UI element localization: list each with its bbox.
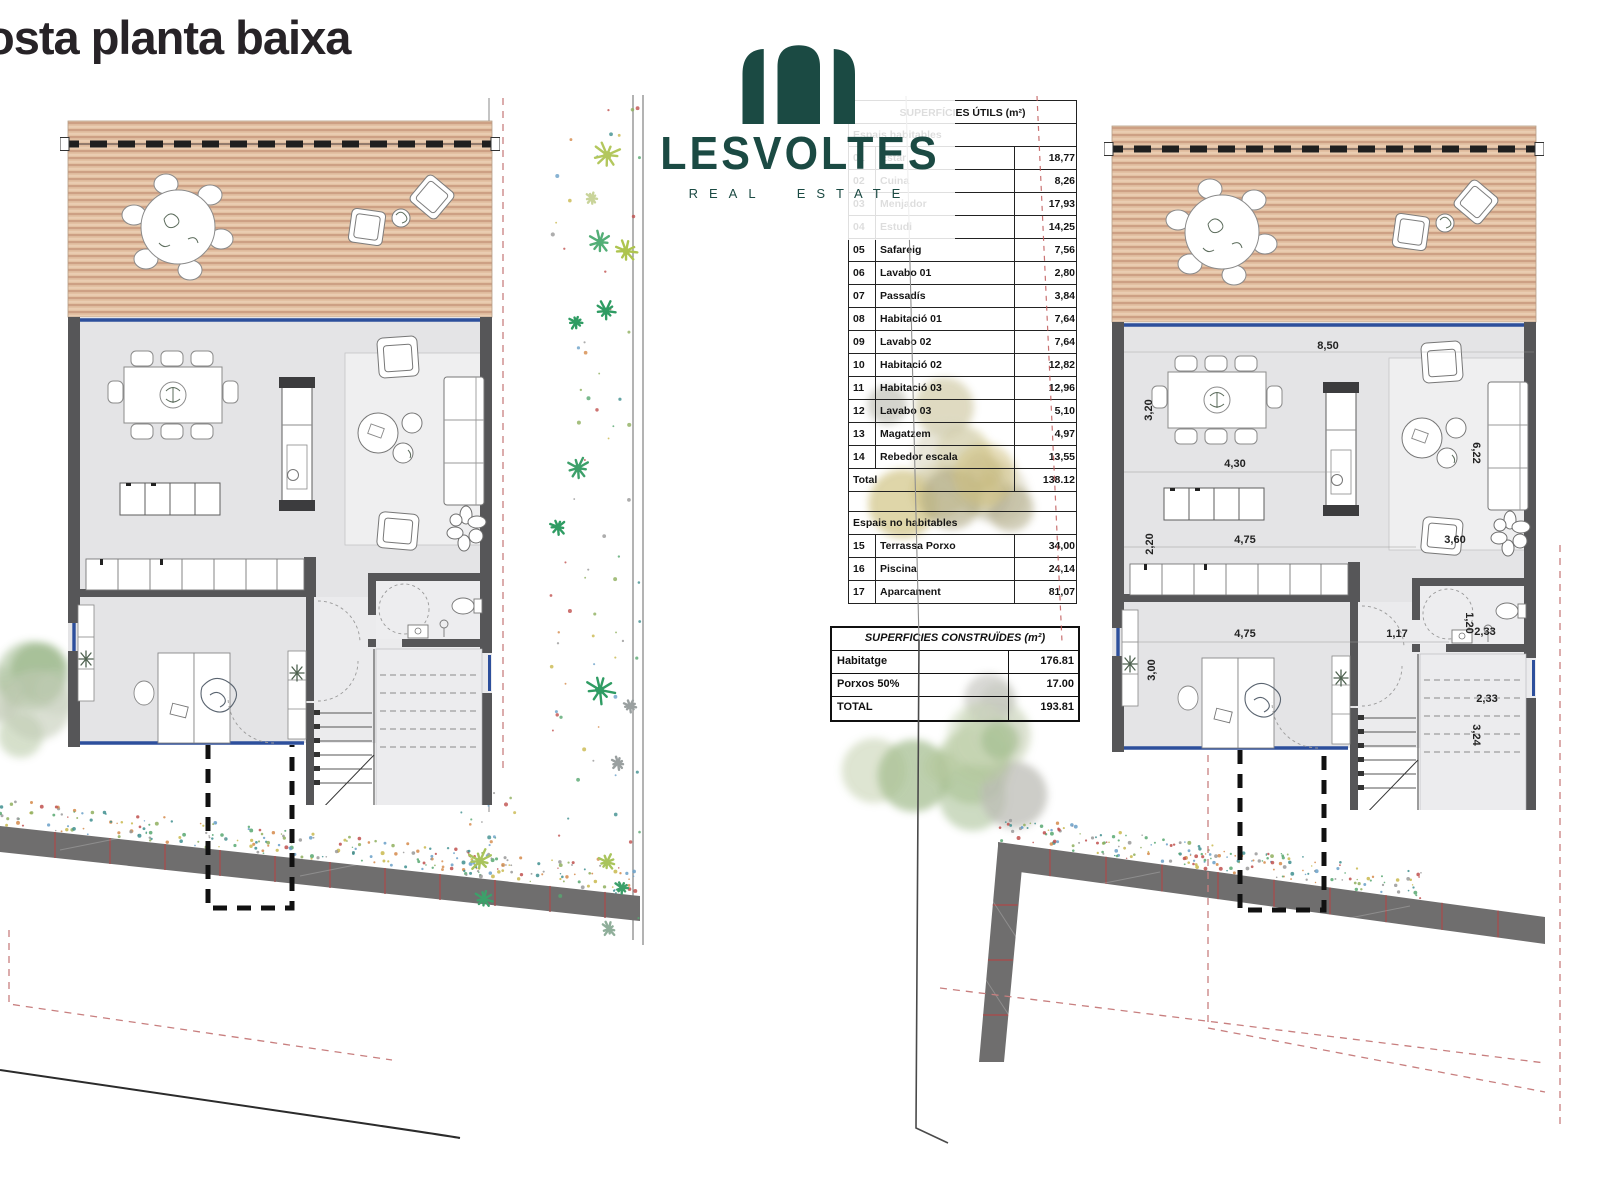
table-cell-num: 08 (849, 308, 876, 330)
table-row: 16Piscina24,14 (848, 558, 1077, 581)
table-cell-value: 2,80 (1014, 262, 1078, 284)
total-value: 138.12 (1014, 469, 1078, 491)
dim-label: 3,60 (1444, 534, 1465, 546)
table-cell-label: Porxos 50% (832, 674, 1008, 696)
dim-label: 3,20 (1143, 399, 1155, 420)
table-cell-label: Magatzem (876, 423, 1014, 445)
table-cell-num: 14 (849, 446, 876, 468)
table-cell-label: Rebedor escala (876, 446, 1014, 468)
logo-wordmark: LESVOLTES (660, 128, 939, 181)
table-row: 11Habitació 0312,96 (848, 377, 1077, 400)
dim-label: 6,22 (1470, 442, 1482, 463)
site-contour-line (0, 1070, 460, 1138)
table-row: 06Lavabo 012,80 (848, 262, 1077, 285)
table-cell-label: Piscina (876, 558, 1014, 580)
table-cell-value: 7,56 (1014, 239, 1078, 261)
table-cell-value: 176.81 (1008, 651, 1078, 673)
table-cell-label: Aparcament (876, 581, 1014, 603)
dim-label: 1,17 (1386, 628, 1407, 640)
total-row: Total 138.12 (848, 469, 1077, 492)
table-row: 09Lavabo 027,64 (848, 331, 1077, 354)
table-cell-value: 18,77 (1014, 147, 1078, 169)
table-cell-label: Terrassa Porxo (876, 535, 1014, 557)
table-cell-num: 06 (849, 262, 876, 284)
dim-label: 2,33 (1474, 626, 1495, 638)
table-cell-value: 34,00 (1014, 535, 1078, 557)
table-cell-label: Safareig (876, 239, 1014, 261)
table-cell-label: Lavabo 03 (876, 400, 1014, 422)
table-cell-num: 07 (849, 285, 876, 307)
table-row: 05Safareig7,56 (848, 239, 1077, 262)
dim-label: 4,75 (1234, 628, 1255, 640)
table-cell-value: 12,96 (1014, 377, 1078, 399)
table-cell-num: 05 (849, 239, 876, 261)
dim-label: 4,75 (1234, 534, 1255, 546)
table-cell-value: 13,55 (1014, 446, 1078, 468)
table-cell-value: 193.81 (1008, 697, 1078, 720)
table-cell-num: 15 (849, 535, 876, 557)
table-row: 14Rebedor escala13,55 (848, 446, 1077, 469)
table-cell-value: 7,64 (1014, 308, 1078, 330)
dim-label: 2,20 (1144, 533, 1156, 554)
table-row: 13Magatzem4,97 (848, 423, 1077, 446)
floor-plan-right: 8,50 3,20 4,30 2,20 4,75 3,60 6,22 4,75 … (1104, 120, 1544, 810)
table-row: 17Aparcament81,07 (848, 581, 1077, 604)
page-title: osta planta baixa (0, 10, 350, 65)
table-row: TOTAL193.81 (832, 697, 1078, 720)
table-cell-num: 11 (849, 377, 876, 399)
table-cell-value: 7,64 (1014, 331, 1078, 353)
table-cell-value: 12,82 (1014, 354, 1078, 376)
built-areas-table: SUPERFICIES CONSTRUÏDES (m²) Habitatge17… (830, 626, 1080, 722)
spacer-row (848, 492, 1077, 512)
table-row: Porxos 50%17.00 (832, 674, 1078, 697)
table-cell-value: 8,26 (1014, 170, 1078, 192)
built-areas-table-title: SUPERFICIES CONSTRUÏDES (m²) (832, 628, 1078, 651)
plan-sheet: 8,50 3,20 4,30 2,20 4,75 3,60 6,22 4,75 … (0, 0, 1600, 1200)
table-cell-label: Habitatge (832, 651, 1008, 673)
table-cell-label: Habitació 03 (876, 377, 1014, 399)
table-row: Habitatge176.81 (832, 651, 1078, 674)
table-cell-label: Lavabo 01 (876, 262, 1014, 284)
built-areas-rows: Habitatge176.81Porxos 50%17.00TOTAL193.8… (832, 651, 1078, 720)
table-cell-label: Habitació 02 (876, 354, 1014, 376)
table-cell-label: TOTAL (832, 697, 1008, 720)
table-cell-num: 16 (849, 558, 876, 580)
logo-tagline: REAL ESTATE (689, 186, 912, 201)
floor-plan-left (60, 115, 500, 805)
dim-label: 8,50 (1317, 340, 1338, 352)
table-cell-label: Passadís (876, 285, 1014, 307)
section-no-habitables-label: Espais no habitables (848, 512, 1077, 535)
table-row: 10Habitació 0212,82 (848, 354, 1077, 377)
dim-label: 2,33 (1476, 693, 1497, 705)
table-cell-value: 14,25 (1014, 216, 1078, 238)
table-cell-num: 13 (849, 423, 876, 445)
dim-label: 4,30 (1224, 458, 1245, 470)
table-cell-label: Lavabo 02 (876, 331, 1014, 353)
table-cell-value: 4,97 (1014, 423, 1078, 445)
table-cell-value: 3,84 (1014, 285, 1078, 307)
table-cell-value: 17,93 (1014, 193, 1078, 215)
table-row: 15Terrassa Porxo34,00 (848, 535, 1077, 558)
table-cell-num: 12 (849, 400, 876, 422)
non-habitable-rows: 15Terrassa Porxo34,0016Piscina24,1417Apa… (848, 535, 1077, 604)
table-cell-value: 81,07 (1014, 581, 1078, 603)
table-row: 07Passadís3,84 (848, 285, 1077, 308)
lesvoltes-logo: LESVOLTES REAL ESTATE (645, 34, 955, 240)
dim-label: 3,24 (1470, 724, 1482, 746)
dim-label: 1,20 (1463, 612, 1475, 633)
table-cell-num: 10 (849, 354, 876, 376)
table-cell-value: 5,10 (1014, 400, 1078, 422)
boundary-lines (489, 95, 643, 945)
dim-label: 3,00 (1146, 659, 1158, 680)
table-cell-num: 17 (849, 581, 876, 603)
table-row: 12Lavabo 035,10 (848, 400, 1077, 423)
table-cell-label: Habitació 01 (876, 308, 1014, 330)
total-label: Total (849, 469, 1014, 491)
retaining-walls (0, 826, 1545, 1062)
table-row: 08Habitació 017,64 (848, 308, 1077, 331)
table-cell-value: 24,14 (1014, 558, 1078, 580)
arches-icon (737, 44, 863, 124)
table-cell-num: 09 (849, 331, 876, 353)
table-cell-value: 17.00 (1008, 674, 1078, 696)
